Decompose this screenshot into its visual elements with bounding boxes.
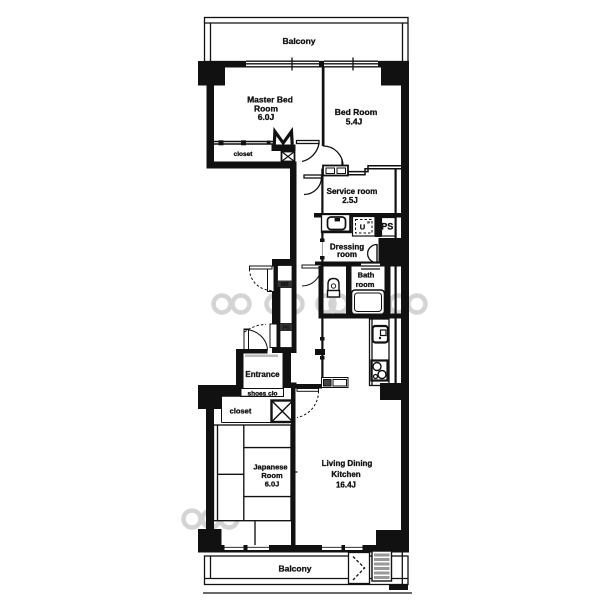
svg-text:”: ”	[367, 222, 370, 228]
svg-text:Balcony: Balcony	[282, 36, 315, 46]
svg-text:Living Dining: Living Dining	[322, 459, 373, 468]
svg-text:6.0J: 6.0J	[258, 112, 275, 122]
svg-text:16.4J: 16.4J	[336, 481, 356, 490]
svg-text:6.0J: 6.0J	[265, 480, 280, 489]
svg-text:U: U	[360, 223, 365, 232]
svg-text:Bath: Bath	[358, 271, 375, 280]
svg-text:closet: closet	[230, 407, 252, 416]
svg-text:Service room: Service room	[327, 187, 378, 196]
svg-text:Balcony: Balcony	[278, 564, 311, 574]
svg-text:Kitchen: Kitchen	[331, 470, 360, 479]
svg-text:PS: PS	[381, 222, 393, 232]
svg-text:5.4J: 5.4J	[346, 117, 363, 127]
svg-text:closet: closet	[234, 151, 254, 158]
svg-text:room: room	[337, 250, 357, 259]
svg-text:room: room	[356, 280, 375, 289]
svg-text:2.5J: 2.5J	[342, 196, 358, 205]
svg-text:Entrance: Entrance	[245, 370, 280, 379]
svg-text:Bed Room: Bed Room	[335, 107, 378, 117]
